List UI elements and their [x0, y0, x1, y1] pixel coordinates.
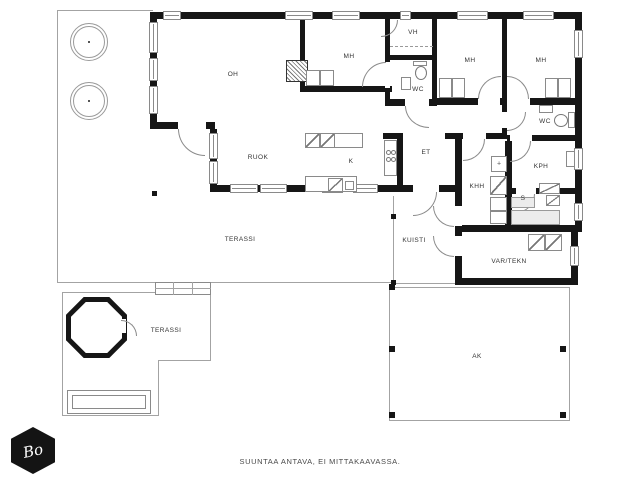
porch-edge — [393, 196, 394, 284]
washer-icon — [491, 156, 507, 172]
tree-center — [88, 41, 90, 43]
window — [400, 11, 411, 20]
room-label-var-tekn: VAR/TEKN — [491, 259, 526, 266]
step-line — [155, 288, 211, 289]
lower-terrace-edge — [62, 292, 63, 416]
window — [285, 11, 313, 20]
door-arc — [121, 320, 137, 336]
wall — [150, 12, 582, 19]
room-label-terassi-lower: TERASSI — [151, 328, 182, 335]
door-opening — [178, 122, 206, 129]
room-label-et: ET — [421, 150, 430, 157]
window — [574, 148, 583, 170]
door-arc — [381, 20, 398, 37]
utility-counter — [490, 211, 507, 224]
door-opening — [478, 98, 500, 105]
roof-post — [152, 191, 157, 196]
wardrobe — [320, 70, 334, 86]
sink-symbol — [401, 77, 411, 90]
room-label-mh3: MH — [536, 58, 547, 65]
room-label-vh: VH — [408, 30, 418, 37]
toilet-bowl-icon — [415, 66, 427, 80]
window — [457, 11, 488, 20]
room-label-mh1: MH — [344, 54, 355, 61]
door-opening — [455, 206, 462, 226]
door-opening — [405, 99, 429, 106]
room-label-wc1: WC — [412, 87, 424, 94]
disclaimer-text: SUUNTAA ANTAVA, EI MITTAKAAVASSA. — [0, 457, 640, 466]
roof-post — [391, 214, 396, 219]
bo-logo: Bo — [11, 427, 55, 474]
window — [149, 58, 158, 81]
lower-terrace-edge — [158, 360, 211, 361]
door-opening — [507, 98, 530, 105]
stove-burner-icon — [391, 150, 396, 155]
carport-edge — [389, 287, 390, 421]
wardrobe — [439, 78, 452, 98]
door-arc — [510, 141, 531, 162]
window — [163, 11, 181, 20]
window — [570, 246, 579, 266]
sink-symbol — [539, 105, 553, 113]
wall — [455, 225, 578, 232]
room-label-s: S — [521, 196, 526, 203]
wall — [432, 19, 437, 106]
window — [149, 86, 158, 114]
wall — [383, 133, 399, 139]
lower-terrace-edge — [62, 415, 159, 416]
door-arc — [433, 236, 454, 257]
carport-post — [389, 284, 395, 290]
toilet-bowl-icon — [554, 114, 568, 127]
door-opening — [413, 185, 439, 192]
grill-hut-floor — [71, 302, 122, 353]
window — [209, 133, 218, 159]
carport-edge — [389, 287, 570, 288]
room-label-kph: KPH — [534, 164, 549, 171]
carport-post — [389, 346, 395, 352]
room-label-khh: KHH — [470, 184, 485, 191]
wardrobe — [452, 78, 465, 98]
room-label-k: K — [349, 159, 354, 166]
window — [574, 30, 583, 58]
door-arc — [507, 76, 529, 99]
closet-shelf-line — [390, 46, 433, 47]
hvac-unit-icon — [528, 234, 545, 251]
window — [260, 184, 287, 193]
lower-terrace-edge — [158, 360, 159, 416]
dryer-icon — [490, 176, 507, 195]
stove-burner-icon — [391, 157, 396, 162]
room-label-kuisti: KUISTI — [402, 238, 425, 245]
carport-post — [560, 412, 566, 418]
carport-post — [389, 412, 395, 418]
room-label-wc2: WC — [539, 119, 551, 126]
utility-counter — [490, 197, 507, 211]
sink-symbol — [345, 181, 354, 190]
room-label-oh: OH — [228, 72, 239, 79]
door-arc — [507, 112, 526, 131]
kitchen-cabinet-door-icon — [305, 133, 320, 148]
room-label-mh2: MH — [465, 58, 476, 65]
kitchen-cabinet-door-icon — [320, 133, 335, 148]
door-arc — [478, 76, 501, 99]
hvac-unit-icon — [545, 234, 562, 251]
sauna-stove-icon — [546, 195, 560, 206]
lower-terrace-edge — [210, 292, 211, 361]
wardrobe — [558, 78, 571, 98]
wall — [397, 133, 403, 192]
terrace-edge — [57, 10, 58, 283]
porch-edge — [393, 283, 456, 284]
bo-logo-text: Bo — [21, 440, 44, 462]
sauna-bench — [511, 210, 560, 225]
window — [149, 22, 158, 53]
room-label-terassi-main: TERASSI — [225, 237, 256, 244]
window — [230, 184, 258, 193]
terrace-edge — [57, 10, 153, 11]
wall — [455, 278, 578, 285]
room-label-ruok: RUOK — [248, 155, 268, 162]
floor-plan-canvas: OH MH VH WC MH MH WC RUOK K ET KHH KPH S… — [0, 0, 640, 480]
wardrobe — [545, 78, 558, 98]
room-label-ak: AK — [472, 354, 481, 361]
door-opening — [455, 236, 462, 256]
sink-symbol — [566, 151, 575, 167]
fireplace-symbol — [286, 60, 308, 82]
planter-box-inner — [72, 395, 146, 409]
carport-edge — [569, 287, 570, 421]
window — [209, 161, 218, 184]
wardrobe — [306, 70, 320, 86]
door-arc — [362, 62, 386, 87]
door-arc — [433, 206, 454, 227]
window — [332, 11, 360, 20]
window — [523, 11, 554, 20]
terrace-edge — [57, 282, 395, 283]
toilet-tank — [568, 112, 575, 128]
door-arc — [463, 139, 485, 161]
carport-edge — [389, 420, 570, 421]
door-arc — [178, 129, 205, 156]
wall — [385, 55, 433, 60]
shower-icon — [539, 183, 560, 194]
dishwasher-icon — [328, 178, 343, 192]
tree-center — [88, 100, 90, 102]
door-arc — [405, 106, 429, 128]
window — [574, 203, 583, 221]
carport-post — [560, 346, 566, 352]
